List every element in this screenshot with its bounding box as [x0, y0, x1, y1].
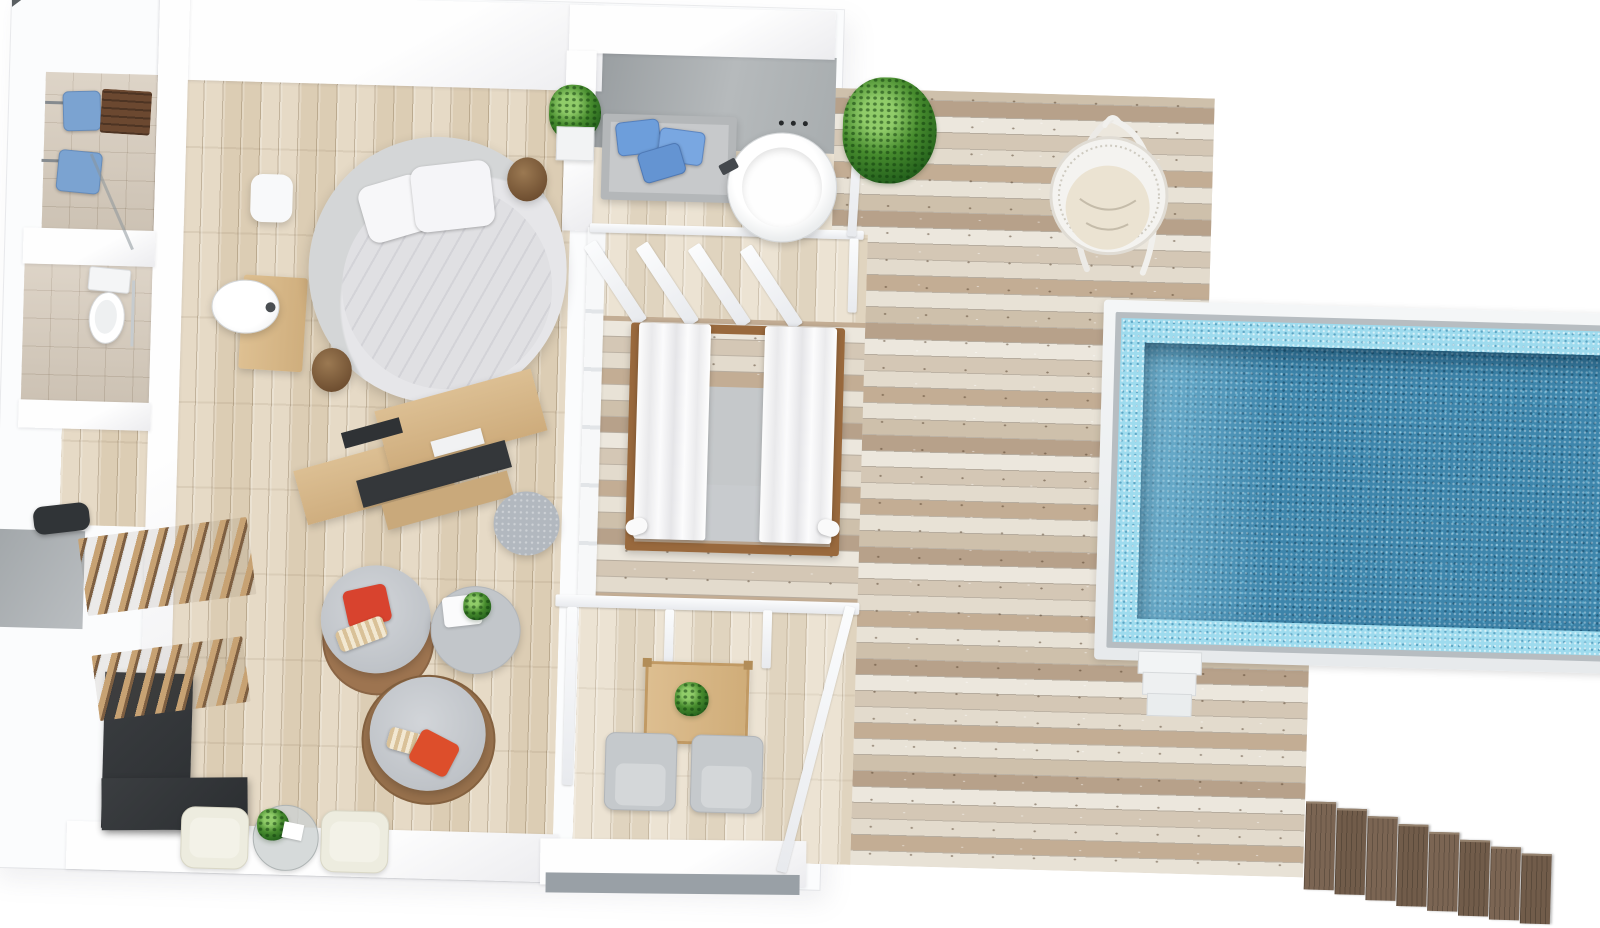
pool — [1094, 300, 1600, 677]
daybed-curtain — [633, 323, 711, 541]
wooden-stairs — [1303, 799, 1562, 910]
pergola-post — [762, 610, 773, 668]
shower-control — [803, 121, 808, 126]
shower-control — [791, 121, 796, 126]
wall-top — [158, 0, 604, 91]
stair-tread — [1396, 824, 1428, 907]
stair-tread — [1458, 840, 1490, 917]
landing-floor — [0, 529, 85, 629]
daybed-curtain — [759, 326, 837, 544]
shower-tray-blue — [55, 149, 103, 195]
toilet — [75, 265, 133, 357]
table-leg — [643, 658, 652, 667]
canopy-daybed — [625, 322, 845, 556]
stair-tread — [1335, 808, 1367, 895]
stair-tread — [1489, 847, 1521, 921]
balcony-parapet-side — [545, 872, 799, 895]
pool-step — [1146, 693, 1192, 717]
wall-shower-divider — [23, 227, 156, 267]
teak-bench — [100, 89, 153, 136]
hanging-egg-chair — [1043, 102, 1178, 286]
wall-wc-bottom — [18, 399, 151, 431]
cream-chair — [180, 806, 250, 870]
floor-plan-scene — [0, 0, 1600, 923]
balcony-armchair — [604, 732, 678, 812]
armchair-cushion — [615, 763, 666, 806]
shower-tray-blue — [62, 90, 101, 131]
stair-tread — [1304, 801, 1336, 890]
chair-seat — [189, 817, 240, 858]
cream-chair — [320, 810, 390, 874]
pool-water — [1137, 343, 1600, 633]
wall-top-right — [569, 5, 836, 60]
chair-seat — [329, 821, 380, 862]
pool-entry-steps — [1136, 651, 1200, 717]
armchair-cushion — [701, 766, 752, 809]
bed-pillow — [409, 159, 496, 234]
white-bench — [250, 174, 293, 223]
table-leg — [744, 661, 753, 670]
balcony-armchair — [690, 734, 764, 814]
egg-chair-graphic — [1043, 102, 1178, 286]
bathtub-basin — [741, 146, 823, 228]
stair-tread — [1520, 853, 1552, 924]
stair-tread — [1365, 816, 1397, 901]
toilet-tank — [87, 266, 131, 294]
